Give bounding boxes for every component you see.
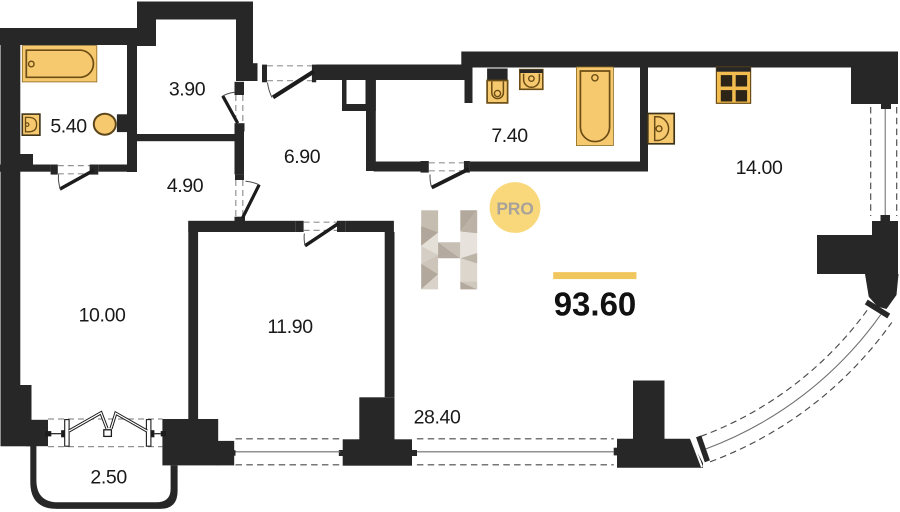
- svg-text:3.90: 3.90: [169, 79, 206, 101]
- svg-text:5.40: 5.40: [50, 116, 87, 138]
- svg-text:2.50: 2.50: [90, 466, 127, 488]
- svg-text:PRO: PRO: [496, 199, 533, 219]
- svg-text:14.00: 14.00: [736, 157, 783, 179]
- svg-text:11.90: 11.90: [267, 316, 313, 338]
- svg-text:93.60: 93.60: [554, 285, 637, 322]
- svg-text:6.90: 6.90: [284, 146, 321, 168]
- svg-text:28.40: 28.40: [414, 407, 461, 429]
- svg-text:7.40: 7.40: [491, 125, 528, 147]
- svg-text:4.90: 4.90: [167, 175, 204, 197]
- svg-text:10.00: 10.00: [79, 305, 126, 327]
